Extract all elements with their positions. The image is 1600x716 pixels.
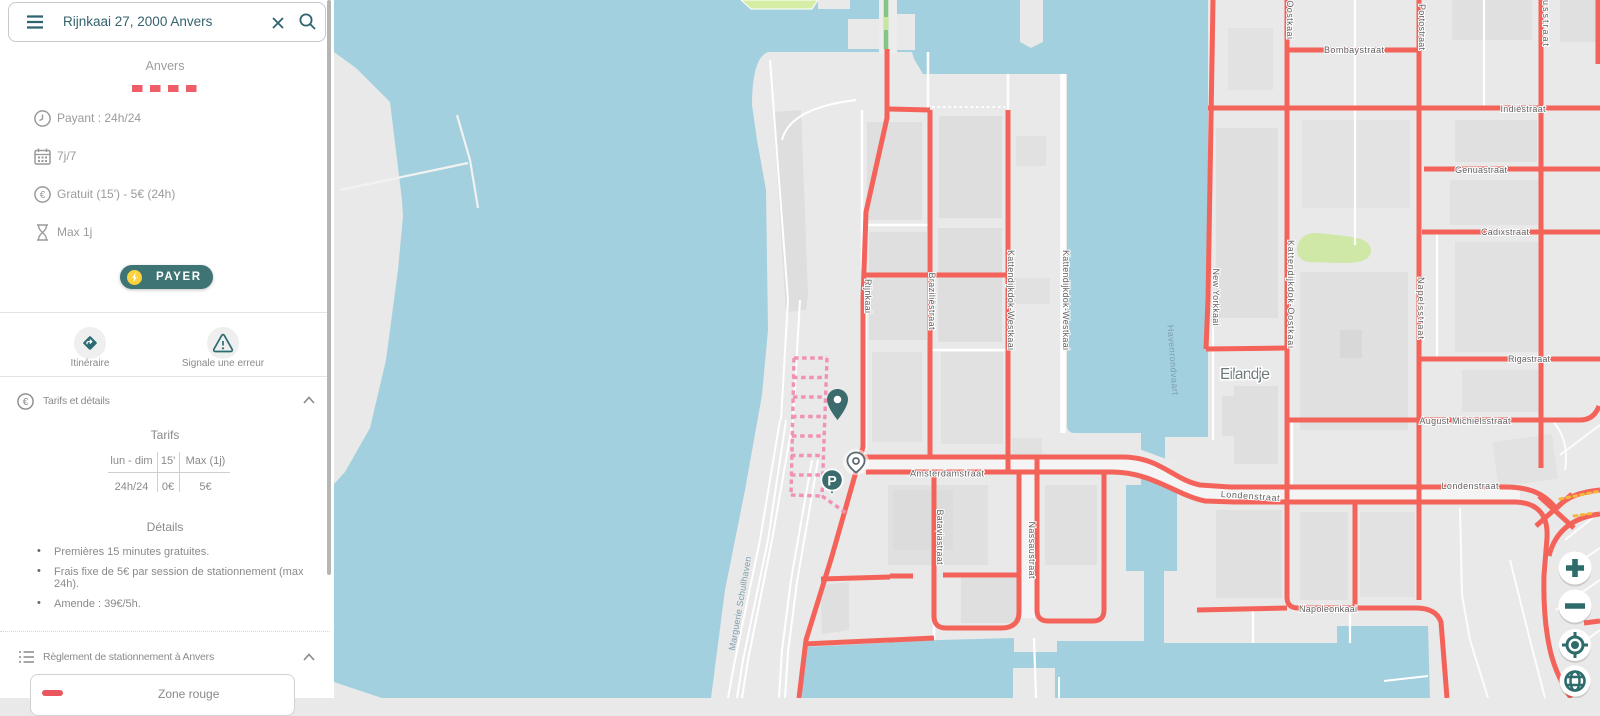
svg-text:Napelsstraat: Napelsstraat xyxy=(1416,277,1426,339)
svg-text:Kattendijkdok-Oostkaai: Kattendijkdok-Oostkaai xyxy=(1286,240,1296,348)
svg-text:Kattendijkdok-Westkaai: Kattendijkdok-Westkaai xyxy=(1061,250,1071,350)
svg-text:Indiëstraat: Indiëstraat xyxy=(1501,104,1546,114)
svg-text:Cadixstraat: Cadixstraat xyxy=(1481,227,1529,237)
svg-text:Nassaustraat: Nassaustraat xyxy=(1027,522,1037,579)
svg-text:Eilandje: Eilandje xyxy=(1220,366,1270,383)
svg-text:Kattendijkdok-Westkaai: Kattendijkdok-Westkaai xyxy=(1006,250,1016,350)
svg-text:Genuastraat: Genuastraat xyxy=(1455,165,1507,175)
svg-text:Rijnkaai: Rijnkaai xyxy=(863,279,873,313)
svg-text:Braziliëstraat: Braziliëstraat xyxy=(927,273,937,330)
svg-text:Portostraat: Portostraat xyxy=(1417,4,1427,50)
svg-text:Londenstraat: Londenstraat xyxy=(1442,481,1499,491)
svg-text:Kattendijkdok-Oostkaai: Kattendijkdok-Oostkaai xyxy=(1285,0,1295,39)
svg-text:€: € xyxy=(23,397,29,408)
svg-text:Bombaystraat: Bombaystraat xyxy=(1324,45,1384,55)
svg-text:€: € xyxy=(40,190,46,201)
svg-text:Rigastraat: Rigastraat xyxy=(1508,354,1550,364)
svg-text:Napoleonkaai: Napoleonkaai xyxy=(1299,604,1357,614)
svg-text:P: P xyxy=(827,473,836,489)
svg-text:New Yorkkaai: New Yorkkaai xyxy=(1211,269,1221,326)
svg-text:Amsterdamstraat: Amsterdamstraat xyxy=(910,469,984,479)
svg-text:Bataviastraat: Bataviastraat xyxy=(935,510,945,565)
svg-text:August Michielsstraat: August Michielsstraat xyxy=(1420,416,1511,426)
